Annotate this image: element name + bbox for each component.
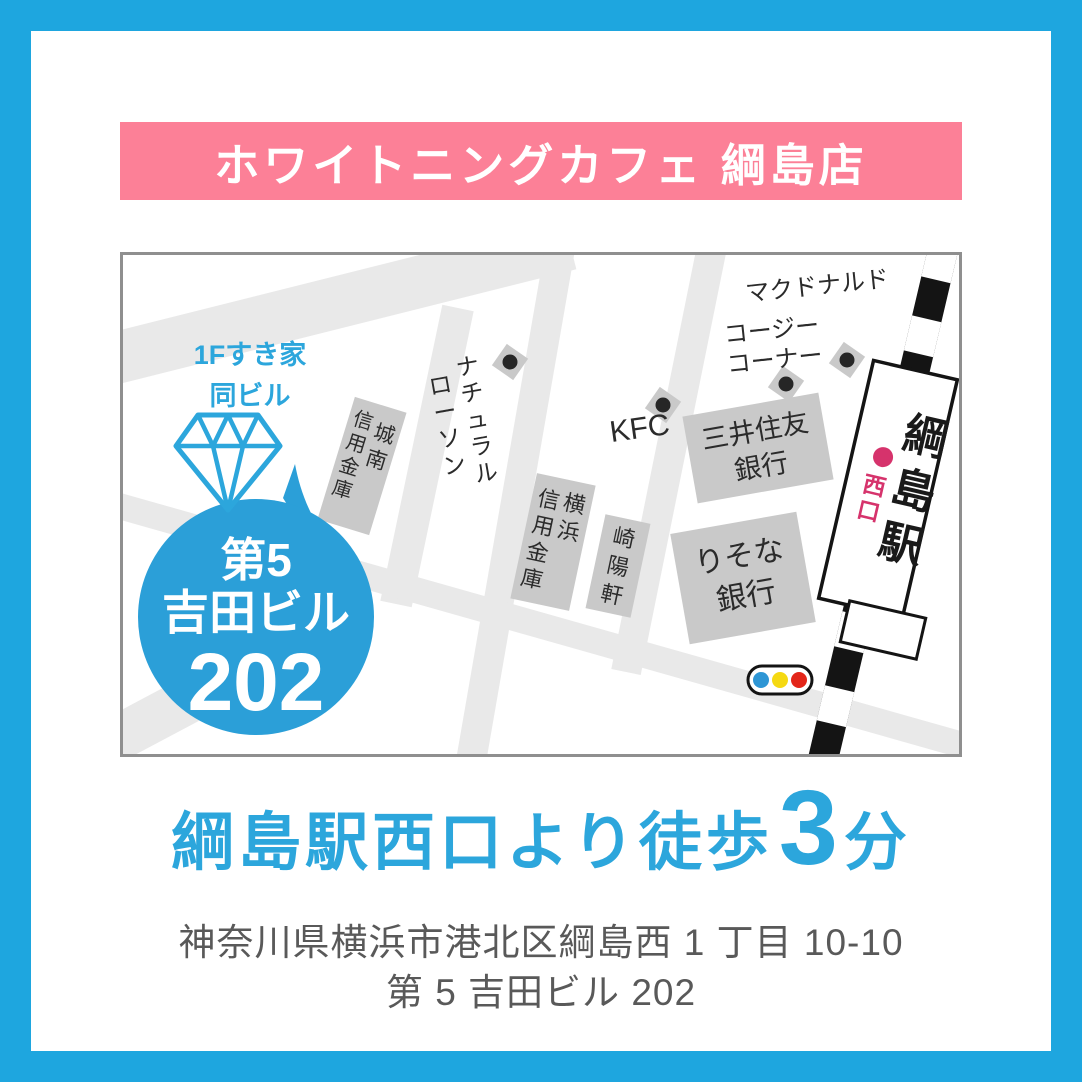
shop-title: ホワイトニングカフェ 綱島店 — [214, 129, 868, 194]
access-map-container: マクドナルド コージー コーナー KFC ナチュラル ローソン 三井住友 銀行 … — [120, 252, 962, 757]
traffic-light-icon — [748, 666, 812, 694]
walk-minutes: 3 — [779, 769, 838, 887]
callout-line2: 吉田ビル — [162, 586, 350, 639]
walk-time-line: 綱島駅西口より徒歩3分 — [0, 772, 1082, 916]
building-resona-bank: りそな 銀行 — [670, 512, 816, 645]
address-line2: 第 5 吉田ビル 202 — [0, 962, 1082, 1016]
walk-prefix: 綱島駅西口より徒歩 — [171, 808, 773, 878]
callout-line1: 第5 — [220, 534, 292, 586]
address-line1: 神奈川県横浜市港北区綱島西 1 丁目 10-10 — [0, 912, 1082, 966]
walk-suffix: 分 — [844, 808, 911, 878]
note-line1: 1Fすき家 — [194, 339, 307, 370]
note-line2: 同ビル — [210, 381, 291, 411]
shop-title-banner: ホワイトニングカフェ 綱島店 — [120, 122, 962, 200]
access-map: マクドナルド コージー コーナー KFC ナチュラル ローソン 三井住友 銀行 … — [120, 252, 962, 757]
page-canvas: ホワイトニングカフェ 綱島店 — [0, 0, 1082, 1082]
callout-line3: 202 — [188, 637, 325, 728]
